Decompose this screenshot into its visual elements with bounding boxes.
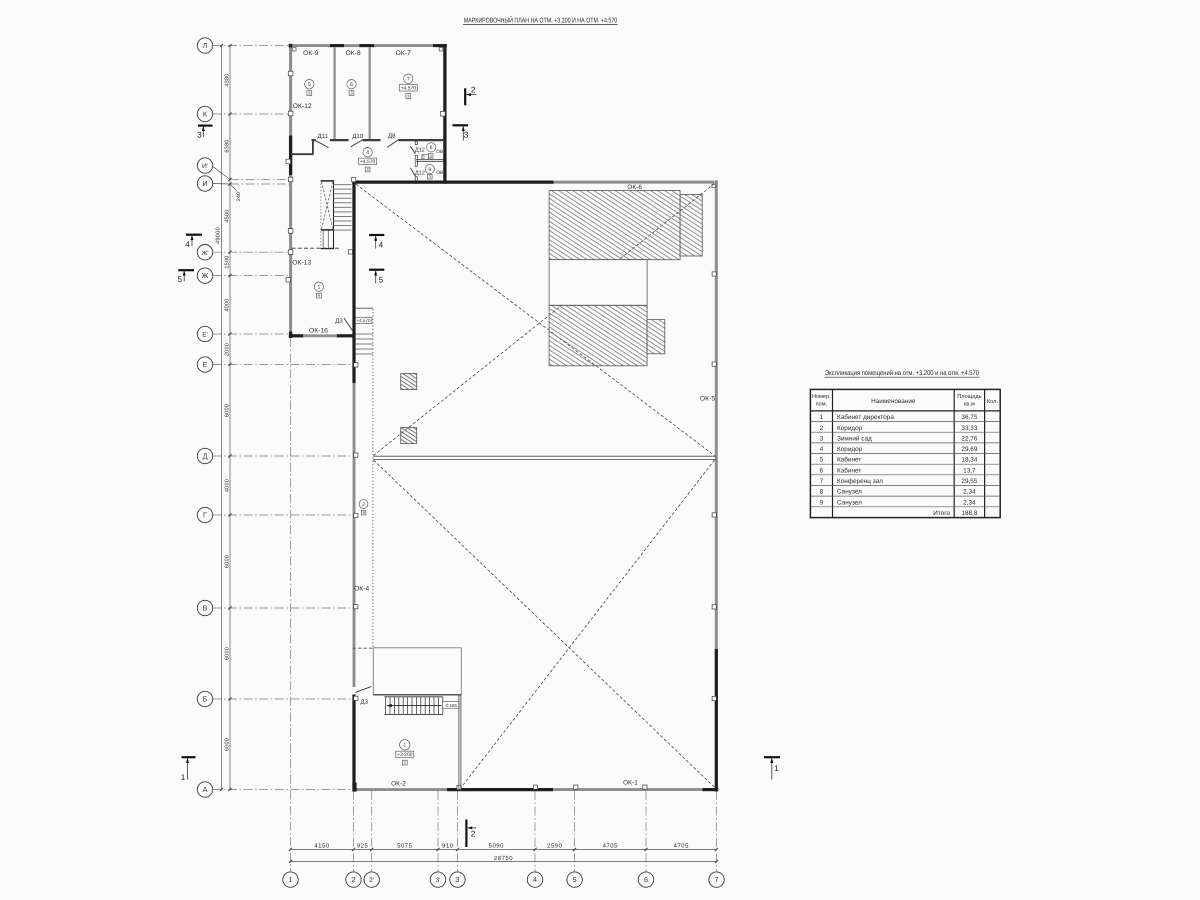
svg-text:1: 1 (403, 743, 406, 749)
svg-text:1: 1 (181, 773, 186, 782)
svg-text:29,55: 29,55 (961, 478, 977, 485)
svg-text:4500: 4500 (224, 209, 230, 222)
svg-text:29,69: 29,69 (961, 446, 977, 453)
svg-text:Д12: Д12 (415, 170, 425, 176)
svg-text:ОК-7: ОК-7 (396, 50, 411, 57)
svg-text:Е: Е (203, 360, 208, 369)
svg-text:4000: 4000 (224, 298, 230, 311)
svg-text:4: 4 (366, 150, 369, 156)
svg-text:+3.200: +3.200 (397, 752, 413, 758)
svg-text:188,8: 188,8 (961, 510, 977, 517)
svg-text:36,75: 36,75 (961, 414, 977, 421)
svg-text:4: 4 (379, 240, 384, 249)
svg-text:4380: 4380 (224, 73, 230, 86)
svg-text:Кабинет директора: Кабинет директора (837, 414, 894, 421)
svg-text:3: 3 (456, 875, 460, 884)
svg-text:6000: 6000 (224, 555, 230, 568)
svg-text:5: 5 (573, 875, 577, 884)
svg-text:ОК-2: ОК-2 (391, 780, 406, 787)
svg-text:И': И' (202, 163, 208, 170)
svg-text:ОК-4: ОК-4 (354, 586, 369, 593)
svg-text:Кабинет: Кабинет (837, 457, 861, 464)
svg-text:8: 8 (430, 145, 433, 151)
svg-text:4: 4 (533, 875, 537, 884)
svg-text:4: 4 (185, 240, 190, 249)
svg-text:Санузел: Санузел (837, 499, 862, 506)
svg-text:1: 1 (289, 875, 293, 884)
svg-text:4150: 4150 (314, 843, 330, 850)
svg-text:Д3: Д3 (360, 699, 368, 706)
svg-text:9: 9 (428, 167, 431, 173)
svg-text:ОК-13: ОК-13 (292, 260, 311, 267)
svg-text:кв.м: кв.м (964, 402, 975, 408)
svg-text:4: 4 (820, 446, 824, 453)
svg-text:Ж: Ж (202, 271, 209, 280)
svg-text:ОК-16: ОК-16 (309, 328, 328, 335)
svg-text:2,34: 2,34 (963, 499, 976, 506)
svg-text:7: 7 (407, 77, 410, 83)
svg-text:18,34: 18,34 (961, 457, 977, 464)
svg-text:Зимний сад: Зимний сад (837, 435, 872, 442)
svg-text:2000: 2000 (224, 343, 230, 356)
svg-text:7: 7 (820, 478, 824, 485)
svg-text:А: А (203, 785, 208, 794)
svg-text:Итого: Итого (933, 510, 950, 517)
svg-text:925: 925 (357, 843, 369, 850)
svg-text:1500: 1500 (224, 255, 230, 268)
svg-text:5: 5 (820, 457, 824, 464)
svg-text:Санузел: Санузел (837, 489, 862, 496)
svg-text:Д8: Д8 (388, 132, 396, 139)
svg-text:1: 1 (774, 764, 779, 773)
svg-text:3': 3' (436, 877, 441, 884)
svg-text:4705: 4705 (674, 843, 690, 850)
svg-text:Кабинет: Кабинет (837, 467, 861, 474)
svg-text:В: В (203, 604, 208, 613)
svg-text:Экспликация помещений на отм.: Экспликация помещений на отм. +3.200 и н… (825, 369, 979, 377)
svg-text:5: 5 (178, 275, 183, 284)
svg-text:Д: Д (203, 452, 208, 461)
svg-text:Б: Б (203, 695, 208, 704)
svg-text:8: 8 (820, 489, 824, 496)
svg-text:6000: 6000 (224, 404, 230, 417)
svg-text:ОК-8: ОК-8 (346, 50, 361, 57)
svg-text:22,76: 22,76 (961, 435, 977, 442)
svg-text:Наименование: Наименование (871, 398, 916, 405)
svg-text:Д3: Д3 (335, 318, 343, 325)
svg-text:1: 1 (820, 414, 824, 421)
svg-text:4000: 4000 (224, 479, 230, 492)
svg-text:7: 7 (715, 875, 719, 884)
svg-text:33,33: 33,33 (961, 425, 977, 432)
svg-text:6: 6 (820, 467, 824, 474)
svg-text:+4.570: +4.570 (360, 159, 376, 165)
svg-text:Г: Г (203, 511, 207, 520)
svg-text:6: 6 (350, 82, 353, 88)
svg-text:Коридор: Коридор (837, 446, 863, 453)
svg-text:9: 9 (820, 499, 824, 506)
svg-text:+4.570: +4.570 (401, 86, 417, 92)
svg-text:ОВ: ОВ (436, 149, 443, 155)
svg-text:-0.185: -0.185 (444, 703, 457, 708)
svg-text:пом.: пом. (816, 402, 828, 408)
svg-text:5090: 5090 (489, 843, 505, 850)
svg-text:Д10: Д10 (352, 133, 364, 140)
svg-text:Кол.: Кол. (987, 399, 999, 405)
svg-text:ОК-5: ОК-5 (700, 396, 715, 403)
svg-text:2,34: 2,34 (963, 489, 976, 496)
svg-text:5075: 5075 (397, 843, 413, 850)
svg-text:3: 3 (464, 131, 469, 140)
svg-text:6000: 6000 (224, 647, 230, 660)
svg-text:4705: 4705 (603, 843, 619, 850)
svg-text:6380: 6380 (224, 139, 230, 152)
svg-text:13,7: 13,7 (963, 467, 976, 474)
svg-text:Д12: Д12 (415, 148, 425, 154)
svg-text:+4.570: +4.570 (356, 318, 371, 323)
svg-text:Номер.: Номер. (812, 394, 831, 400)
svg-text:5: 5 (308, 82, 311, 88)
svg-text:28750: 28750 (494, 855, 513, 862)
svg-text:3: 3 (197, 131, 202, 140)
svg-text:3: 3 (820, 435, 824, 442)
svg-text:ОК-9: ОК-9 (303, 50, 318, 57)
svg-text:2: 2 (471, 830, 476, 839)
svg-text:2: 2 (471, 85, 476, 94)
svg-text:Конференц зал: Конференц зал (837, 478, 883, 485)
svg-text:МАРКИРОВОЧНЫЙ ПЛАН НА ОТМ. +3.: МАРКИРОВОЧНЫЙ ПЛАН НА ОТМ. +3.200 И НА О… (464, 15, 618, 24)
svg-text:2590: 2590 (547, 843, 563, 850)
svg-text:Ж': Ж' (201, 250, 208, 257)
svg-text:240: 240 (236, 192, 242, 201)
svg-text:49000: 49000 (215, 227, 221, 244)
svg-text:ОК-12: ОК-12 (293, 103, 312, 110)
svg-text:2: 2 (820, 425, 824, 432)
svg-text:ОК-1: ОК-1 (623, 780, 638, 787)
svg-text:6: 6 (644, 875, 648, 884)
svg-text:ОК-6: ОК-6 (627, 184, 642, 191)
svg-text:Е': Е' (202, 332, 207, 339)
svg-text:2: 2 (362, 502, 365, 508)
svg-text:2: 2 (352, 875, 356, 884)
svg-text:Площадь: Площадь (957, 394, 981, 400)
svg-text:Д11: Д11 (318, 133, 329, 140)
svg-text:6000: 6000 (224, 738, 230, 751)
svg-text:И: И (202, 179, 207, 188)
svg-text:2': 2' (369, 877, 374, 884)
svg-text:1: 1 (317, 285, 320, 291)
svg-text:5: 5 (379, 275, 384, 284)
svg-text:ОВ: ОВ (436, 170, 443, 176)
svg-text:Л: Л (203, 41, 208, 50)
svg-text:910: 910 (442, 843, 454, 850)
svg-text:Коридор: Коридор (837, 425, 863, 432)
